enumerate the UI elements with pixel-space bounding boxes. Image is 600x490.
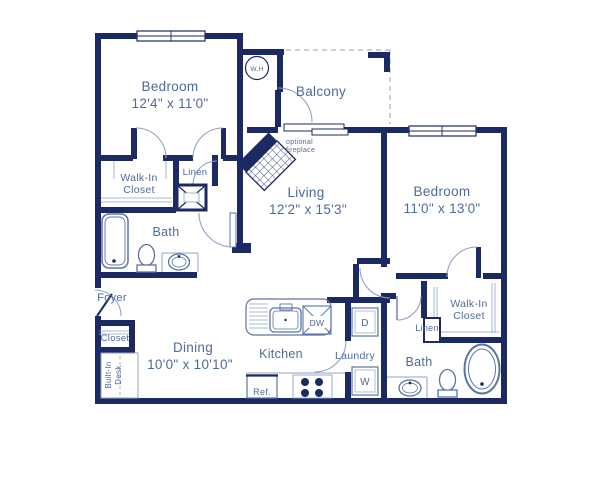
toilet (438, 370, 457, 398)
built-in-desk-label-1: Built-In (104, 361, 113, 388)
dishwasher-label: DW (310, 318, 325, 328)
living-label: Living (287, 185, 324, 200)
balcony-sliding-door (284, 124, 348, 135)
bath2-fixtures (387, 345, 500, 399)
floor-plan: Bedroom 12'4" x 11'0" Balcony Living 12'… (0, 0, 600, 490)
stove (293, 375, 332, 398)
bathtub (465, 345, 500, 394)
bath1-label: Bath (153, 225, 180, 239)
water-heater-label: W.H (250, 66, 263, 73)
sink (162, 253, 198, 272)
bedroom2-label: Bedroom (414, 184, 471, 199)
walk-in-closet2-label-1: Walk-In (450, 298, 487, 310)
bedroom1-window (137, 31, 205, 41)
mechanical-chase (177, 185, 206, 210)
dining-dims: 10'0" x 10'10" (147, 357, 233, 372)
balcony-label: Balcony (296, 84, 346, 99)
kitchen-label: Kitchen (259, 347, 303, 361)
laundry-label: Laundry (335, 350, 375, 362)
bath1-fixtures (102, 214, 198, 272)
labels: Bedroom 12'4" x 11'0" Balcony Living 12'… (97, 66, 487, 397)
fireplace-label-1: optional (286, 139, 313, 146)
bathtub (102, 214, 128, 268)
kitchen-sink (270, 304, 301, 332)
floor-plan-page: Bedroom 12'4" x 11'0" Balcony Living 12'… (0, 0, 600, 490)
bedroom2-entry-door (447, 247, 481, 278)
toilet (137, 245, 156, 273)
foyer-label: Foyer (97, 292, 127, 304)
linen2-label: Linen (415, 323, 439, 333)
walk-in-closet1-label-2: Closet (123, 184, 155, 196)
bath2-door (397, 296, 421, 320)
bedroom2-dims: 11'0" x 13'0" (404, 201, 481, 216)
refrigerator-label: Ref. (253, 387, 271, 397)
living-dims: 12'2" x 15'3" (269, 202, 347, 217)
sink (399, 380, 421, 396)
bedroom1-dims: 12'4" x 11'0" (132, 96, 209, 111)
washer-label: W (360, 377, 370, 388)
bedroom1-closet-door (131, 128, 166, 159)
walk-in-closet2-label-2: Closet (453, 310, 485, 322)
fireplace-label-2: fireplace (286, 147, 315, 154)
bath1-door (199, 213, 236, 247)
walk-in-closet1-label-1: Walk-In (120, 172, 157, 184)
bedroom1-entry-door (193, 128, 226, 159)
built-in-desk-label-2: Desk (114, 365, 123, 385)
dryer-label: D (361, 318, 369, 329)
closet-label: Closet (101, 333, 130, 344)
linen1-label: Linen (183, 167, 208, 178)
dining-label: Dining (173, 340, 213, 355)
bath2-label: Bath (406, 355, 433, 369)
bedroom1-label: Bedroom (142, 79, 199, 94)
bedroom2-window (409, 126, 476, 136)
